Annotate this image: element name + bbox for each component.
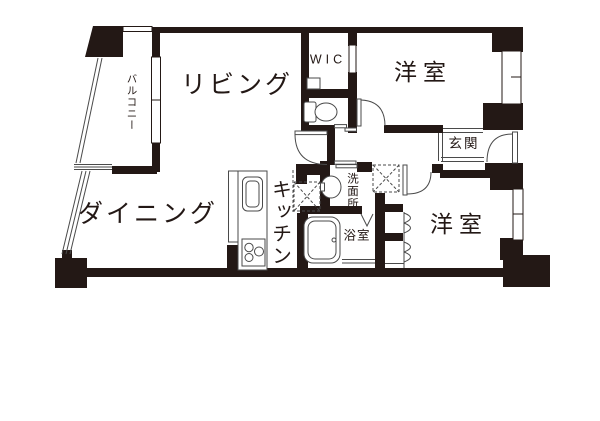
stove-fixture <box>242 239 265 266</box>
washing-machine-space <box>373 165 399 192</box>
room-label-dining: ダイニング <box>78 201 218 227</box>
room-label-western-room-bottom: 洋室 <box>430 212 488 236</box>
toilet-fixture <box>304 102 337 122</box>
room-label-living: リビング <box>181 72 293 98</box>
floorplan: リビング ダイニング キッチン 洋室 洋室 WIC 玄関 洗面所 浴室 バルコニ… <box>0 0 600 421</box>
room-label-bathroom: 浴室 <box>343 229 370 242</box>
room-label-entrance: 玄関 <box>449 137 480 151</box>
room-label-washroom: 洗面所 <box>346 172 358 210</box>
room-label-balcony: バルコニー <box>125 73 136 131</box>
room-label-kitchen: キッチン <box>269 179 290 267</box>
room-label-wic: WIC <box>310 53 346 66</box>
room-label-western-room-top: 洋室 <box>394 60 452 84</box>
washbasin-fixture <box>321 176 342 198</box>
